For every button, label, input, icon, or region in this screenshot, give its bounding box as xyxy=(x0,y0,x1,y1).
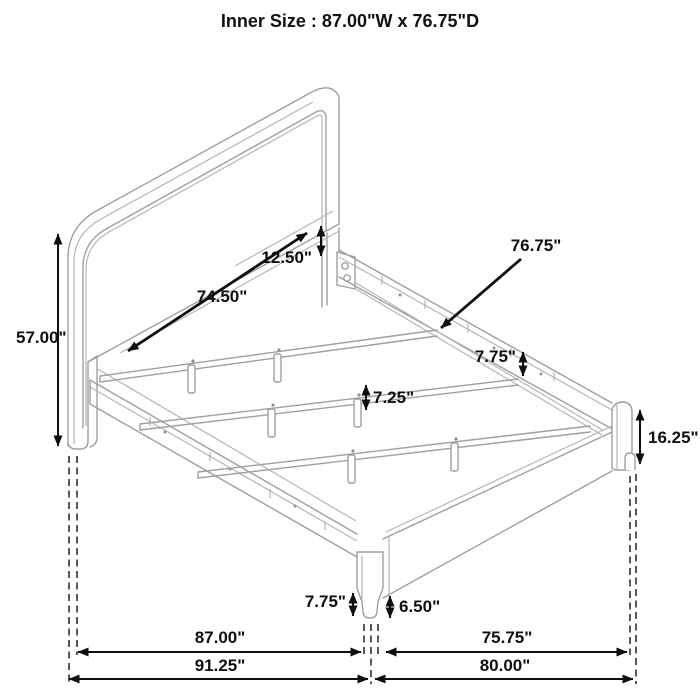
foot-rail-bottom-edge xyxy=(383,471,612,598)
dimension-overall-width: 91.25" xyxy=(69,656,368,679)
dimension-label: 80.00" xyxy=(480,656,531,675)
dimension-footboard-corner-height: 16.25" xyxy=(640,410,699,464)
right-rail-hole xyxy=(399,294,402,297)
support-leg-hole xyxy=(277,348,280,351)
left-rail-hole xyxy=(294,505,297,508)
dimension-width-between-legs: 87.00" xyxy=(78,628,361,652)
support-leg-hole xyxy=(191,359,194,362)
dimension-rail-floor-clearance: 7.75" xyxy=(305,592,353,616)
dimension-label: 57.00" xyxy=(16,328,67,347)
dimension-label: 76.75" xyxy=(511,236,562,255)
left-rail-slat-ledge xyxy=(96,368,356,521)
left-rail-hole xyxy=(164,431,167,434)
cross-rail-2 xyxy=(140,379,518,430)
front-leg-outline xyxy=(357,552,383,618)
support-leg xyxy=(348,455,355,483)
dimension-depth-between-legs: 75.75" xyxy=(386,628,627,652)
right-side-rail xyxy=(339,250,614,435)
dimension-rail-inner-depth: 76.75" xyxy=(441,236,561,328)
diagram-canvas: Inner Size : 87.00"W x 76.75"D xyxy=(0,0,700,700)
support-leg xyxy=(268,409,275,437)
support-leg-hole xyxy=(357,393,360,396)
right-leg-foot-tab xyxy=(625,453,635,470)
dimension-label: 91.25" xyxy=(195,656,246,675)
support-leg xyxy=(354,399,361,427)
support-leg-hole xyxy=(271,403,274,406)
dimension-label: 75.75" xyxy=(482,628,533,647)
dimension-label: 12.50" xyxy=(261,248,312,267)
dimension-front-leg-height: 6.50" xyxy=(390,596,440,618)
diagram-title: Inner Size : 87.00"W x 76.75"D xyxy=(221,11,479,31)
cross-rails xyxy=(100,330,590,483)
dimension-label: 74.50" xyxy=(197,287,248,306)
foot-rail xyxy=(383,425,614,598)
support-leg xyxy=(274,354,281,382)
headboard-outline xyxy=(68,88,339,449)
foot-rail-top-edge xyxy=(383,432,612,539)
dimension-support-leg-height: 7.25" xyxy=(366,385,414,410)
left-rail-bottom-edge xyxy=(90,404,357,557)
support-leg-hole xyxy=(351,449,354,452)
dimension-label: 16.25" xyxy=(648,428,699,447)
dimension-overall-depth: 80.00" xyxy=(375,656,633,679)
dimension-label: 7.75" xyxy=(305,592,346,611)
dimension-label: 7.75" xyxy=(475,347,516,366)
bed-dimension-diagram: Inner Size : 87.00"W x 76.75"D xyxy=(0,0,700,700)
dimension-label: 7.25" xyxy=(373,388,414,407)
support-leg xyxy=(451,443,458,471)
dimension-label: 6.50" xyxy=(399,597,440,616)
support-leg-hole xyxy=(454,437,457,440)
right-rail-top-edge xyxy=(339,250,612,403)
right-rail-hole xyxy=(540,373,543,376)
dimension-headboard-height: 57.00" xyxy=(16,234,67,446)
support-leg xyxy=(188,365,195,393)
headboard xyxy=(68,88,355,449)
dimension-label: 87.00" xyxy=(195,628,246,647)
dimension-rail-top-drop: 7.75" xyxy=(475,347,523,376)
dimension-arrow xyxy=(441,259,521,328)
front-leg xyxy=(357,552,383,618)
floor-reference-lines xyxy=(69,456,636,684)
right-rail-notches xyxy=(382,276,554,381)
right-leg xyxy=(612,402,635,470)
foot-rail-top-face xyxy=(386,425,614,532)
left-side-rail xyxy=(90,368,357,557)
